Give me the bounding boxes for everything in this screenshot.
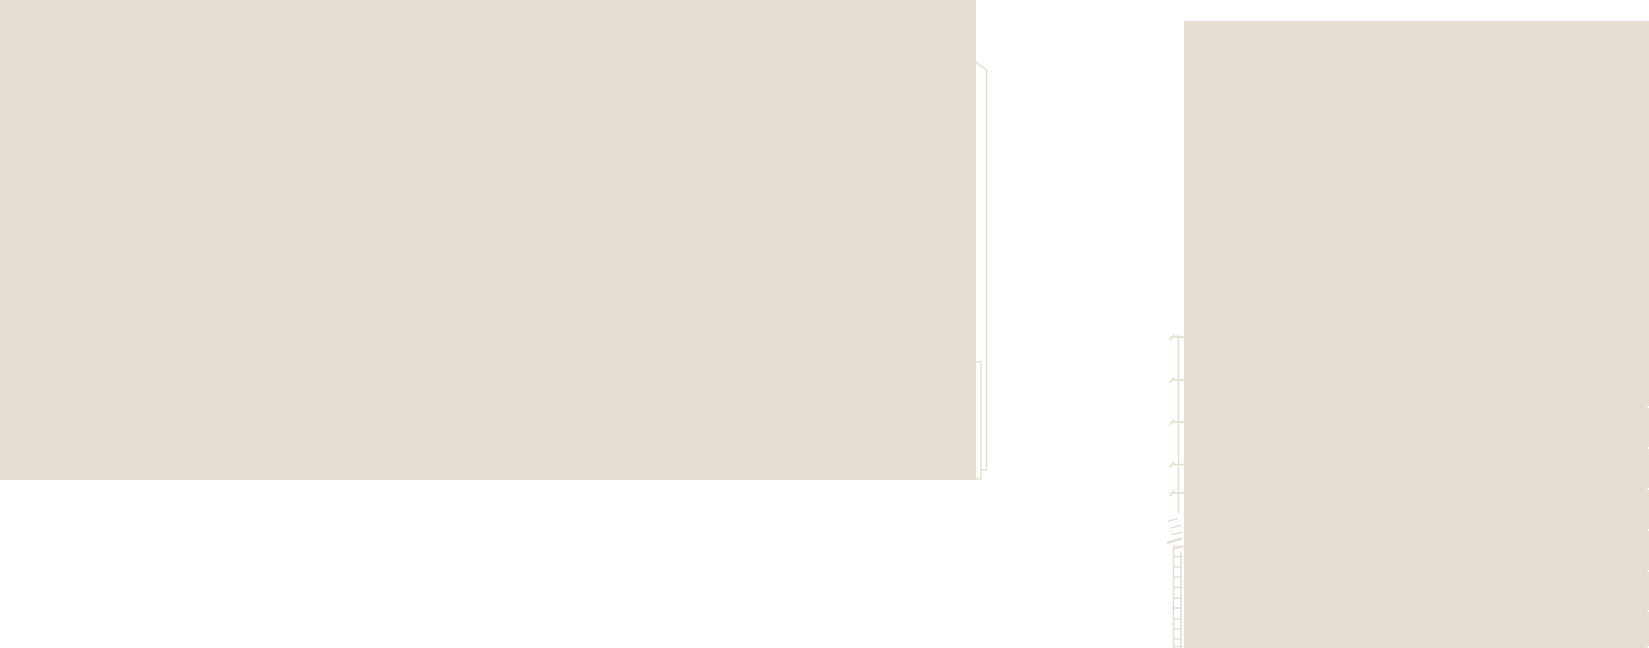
roof-diagonal-line (976, 62, 987, 70)
dimension-tick-serif (1170, 462, 1175, 468)
narrow-box-outline (976, 362, 982, 479)
break-mark (1170, 526, 1181, 529)
dimension-tick-serif (1170, 378, 1175, 384)
drawing-canvas (0, 0, 1649, 648)
right-beige-panel (1184, 21, 1649, 648)
break-mark (1167, 539, 1182, 544)
break-mark (1168, 519, 1178, 522)
break-mark (1172, 532, 1183, 535)
dimension-tick-serif (1170, 420, 1175, 426)
dimension-tick-serif (1170, 491, 1175, 497)
dimension-tick-serif (1170, 335, 1175, 341)
left-beige-panel (0, 0, 976, 480)
